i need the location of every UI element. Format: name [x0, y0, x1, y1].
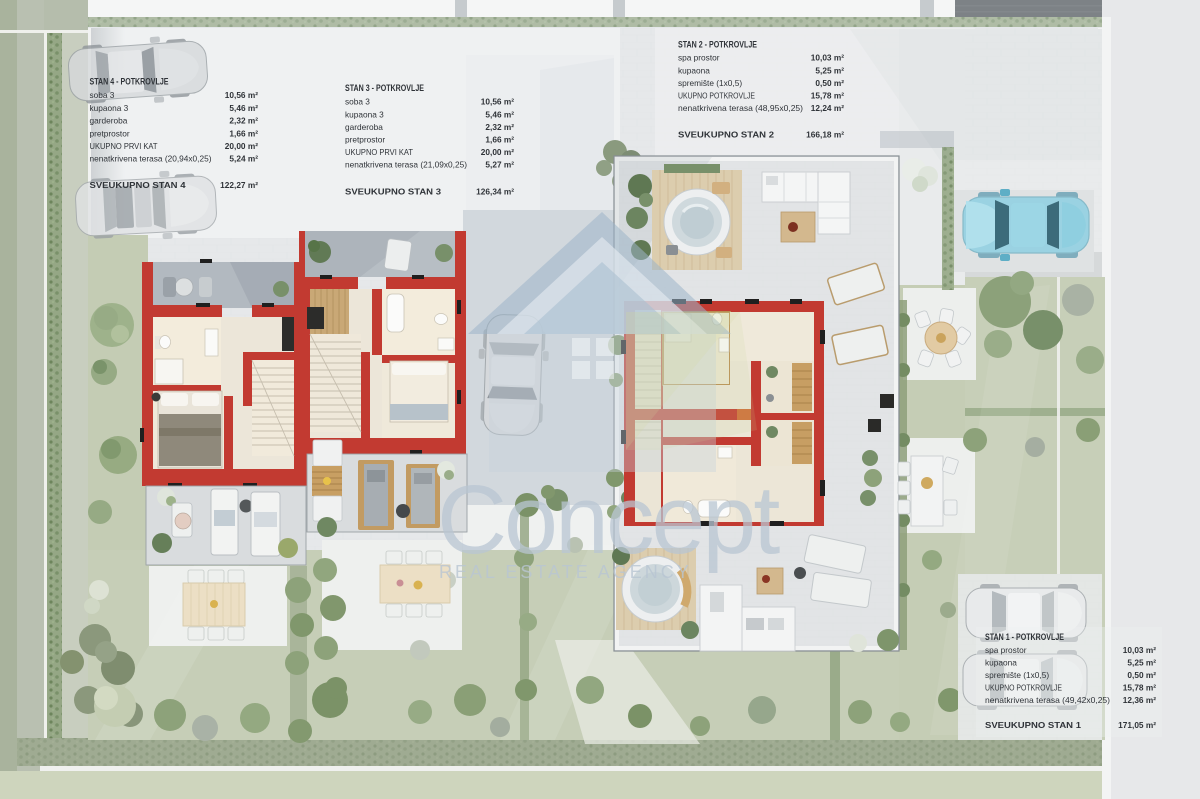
svg-text:pretprostor: pretprostor: [90, 129, 130, 139]
svg-text:pretprostor: pretprostor: [345, 135, 385, 145]
svg-text:STAN 2 - POTKROVLJE: STAN 2 - POTKROVLJE: [678, 40, 757, 50]
svg-text:spa prostor: spa prostor: [678, 53, 720, 63]
svg-text:kupaona 3: kupaona 3: [90, 103, 129, 113]
svg-text:2,32 m²: 2,32 m²: [229, 116, 258, 126]
svg-text:10,03 m²: 10,03 m²: [1123, 645, 1156, 655]
svg-text:STAN 3 - POTKROVLJE: STAN 3 - POTKROVLJE: [345, 83, 424, 93]
svg-text:SVEUKUPNO STAN 3: SVEUKUPNO STAN 3: [345, 187, 441, 197]
svg-text:spremište (1x0,5): spremište (1x0,5): [678, 78, 742, 88]
svg-text:Concept: Concept: [437, 465, 780, 574]
svg-text:soba 3: soba 3: [345, 97, 370, 107]
svg-text:UKUPNO POTKROVLJE: UKUPNO POTKROVLJE: [985, 683, 1062, 693]
svg-text:5,25 m²: 5,25 m²: [1127, 658, 1156, 668]
svg-text:nenatkrivena terasa (21,09x0,: nenatkrivena terasa (21,09x0,25): [345, 160, 467, 170]
svg-text:UKUPNO PRVI KAT: UKUPNO PRVI KAT: [345, 147, 413, 157]
svg-text:5,25 m²: 5,25 m²: [815, 66, 844, 76]
svg-text:kupaona: kupaona: [985, 658, 1017, 668]
svg-text:kupaona 3: kupaona 3: [345, 110, 384, 120]
svg-text:SVEUKUPNO STAN 4: SVEUKUPNO STAN 4: [90, 180, 186, 190]
svg-text:5,46 m²: 5,46 m²: [485, 110, 514, 120]
svg-text:spremište (1x0,5): spremište (1x0,5): [985, 670, 1049, 680]
svg-text:nenatkrivena terasa (20,94x0,: nenatkrivena terasa (20,94x0,25): [90, 154, 212, 164]
svg-text:soba 3: soba 3: [90, 90, 115, 100]
svg-text:5,24 m²: 5,24 m²: [229, 154, 258, 164]
svg-text:12,36 m²: 12,36 m²: [1123, 695, 1156, 705]
svg-text:SVEUKUPNO STAN 2: SVEUKUPNO STAN 2: [678, 130, 774, 140]
svg-text:STAN 4 - POTKROVLJE: STAN 4 - POTKROVLJE: [90, 77, 169, 87]
svg-text:126,34 m²: 126,34 m²: [476, 187, 514, 197]
svg-text:15,78 m²: 15,78 m²: [1123, 683, 1156, 693]
svg-text:1,66 m²: 1,66 m²: [229, 129, 258, 139]
svg-text:nenatkrivena terasa (48,95x0,: nenatkrivena terasa (48,95x0,25): [678, 103, 803, 113]
svg-text:spa prostor: spa prostor: [985, 645, 1027, 655]
svg-text:0,50 m²: 0,50 m²: [815, 78, 844, 88]
svg-text:10,56 m²: 10,56 m²: [225, 90, 258, 100]
svg-text:kupaona: kupaona: [678, 66, 710, 76]
svg-text:garderoba: garderoba: [345, 122, 383, 132]
svg-text:12,24 m²: 12,24 m²: [811, 103, 844, 113]
svg-text:SVEUKUPNO STAN 1: SVEUKUPNO STAN 1: [985, 720, 1081, 730]
svg-text:122,27 m²: 122,27 m²: [220, 180, 258, 190]
svg-text:2,32 m²: 2,32 m²: [485, 122, 514, 132]
svg-text:5,27 m²: 5,27 m²: [485, 160, 514, 170]
svg-text:nenatkrivena terasa (49,42x0,: nenatkrivena terasa (49,42x0,25): [985, 695, 1110, 705]
svg-text:REAL ESTATE AGENCY: REAL ESTATE AGENCY: [439, 562, 692, 582]
svg-text:UKUPNO POTKROVLJE: UKUPNO POTKROVLJE: [678, 91, 755, 101]
svg-text:UKUPNO PRVI KAT: UKUPNO PRVI KAT: [90, 141, 158, 151]
svg-text:1,66 m²: 1,66 m²: [485, 135, 514, 145]
svg-text:10,03 m²: 10,03 m²: [811, 53, 844, 63]
svg-text:0,50 m²: 0,50 m²: [1127, 670, 1156, 680]
svg-text:STAN 1 - POTKROVLJE: STAN 1 - POTKROVLJE: [985, 632, 1064, 642]
svg-text:15,78 m²: 15,78 m²: [811, 91, 844, 101]
svg-text:171,05 m²: 171,05 m²: [1118, 720, 1156, 730]
svg-text:20,00 m²: 20,00 m²: [481, 147, 514, 157]
svg-text:5,46 m²: 5,46 m²: [229, 103, 258, 113]
svg-text:garderoba: garderoba: [90, 116, 128, 126]
svg-text:20,00 m²: 20,00 m²: [225, 141, 258, 151]
svg-text:166,18 m²: 166,18 m²: [806, 130, 844, 140]
svg-text:10,56 m²: 10,56 m²: [481, 97, 514, 107]
